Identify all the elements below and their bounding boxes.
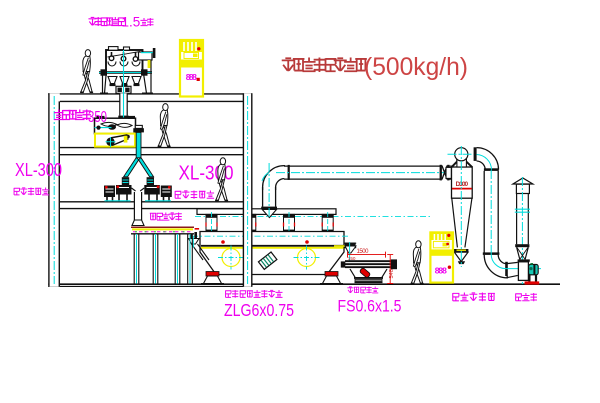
svg-text:548: 548: [389, 269, 395, 278]
svg-text:ZLG6x0.75: ZLG6x0.75: [224, 300, 294, 320]
svg-text:XL-300: XL-300: [15, 159, 62, 180]
svg-text:350: 350: [88, 109, 107, 126]
svg-text:1500: 1500: [357, 249, 370, 255]
svg-text:888: 888: [186, 72, 197, 82]
svg-text:150: 150: [348, 256, 356, 261]
svg-text:1.5: 1.5: [122, 15, 141, 30]
svg-text:888: 888: [435, 265, 447, 275]
svg-text:(500kg/h): (500kg/h): [364, 53, 468, 81]
svg-text:D300: D300: [456, 181, 469, 188]
svg-text:FS0.6x1.5: FS0.6x1.5: [338, 297, 402, 316]
